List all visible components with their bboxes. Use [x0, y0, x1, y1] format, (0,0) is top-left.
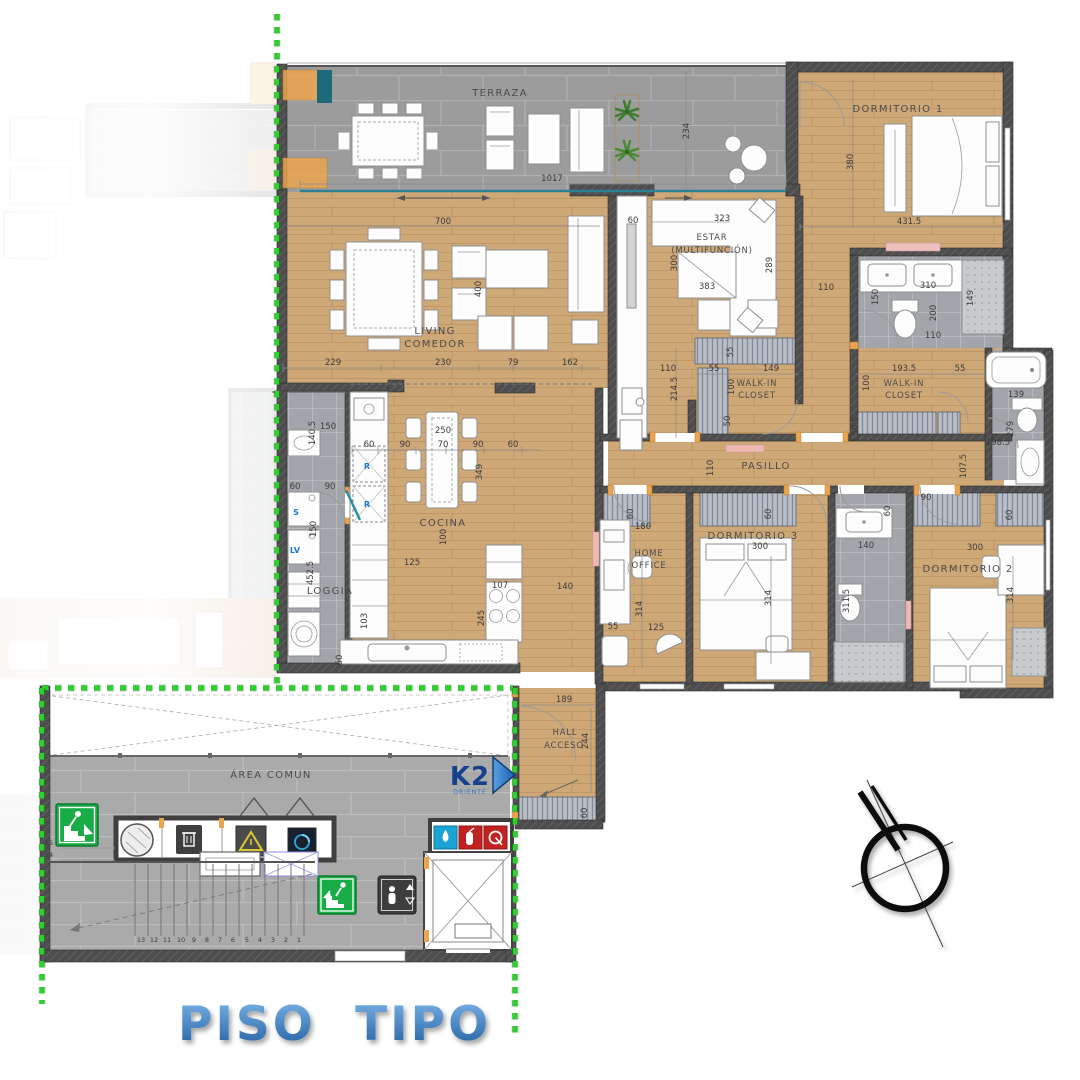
- water-tank-icon: [121, 824, 153, 856]
- exit-stairs-icon: [56, 804, 98, 846]
- stair-number: 6: [231, 936, 235, 944]
- trash-icon: [176, 825, 202, 854]
- dim-label: 100: [727, 379, 737, 395]
- dim-label: 60: [335, 655, 345, 666]
- page-title: PISO TIPO: [178, 997, 491, 1052]
- room-label-cocina: COCINA: [420, 518, 467, 529]
- dim-label: 60: [364, 440, 375, 450]
- dim-label: 314: [1006, 587, 1016, 603]
- dim-label: 103: [360, 613, 370, 629]
- dim-label: 180: [635, 522, 651, 532]
- dim-label: 60: [764, 509, 774, 520]
- dim-label: 150: [320, 422, 336, 432]
- floor-plan-canvas: TERRAZA DORMITORIO 1 LIVING COMEDOR ESTA…: [0, 0, 1080, 1080]
- dim-label: 100: [439, 529, 449, 545]
- dim-label: 50.5: [851, 417, 861, 436]
- room-label-estar: ESTAR: [696, 233, 727, 243]
- dim-label: 349: [475, 464, 485, 480]
- room-label-walkin2b: CLOSET: [885, 391, 923, 401]
- dryer-label: S: [293, 508, 299, 517]
- room-label-living2: COMEDOR: [404, 339, 465, 350]
- room-label-living: LIVING: [414, 326, 455, 337]
- dim-label: 110: [818, 283, 834, 293]
- stair-number: 5: [245, 936, 249, 944]
- dim-label: 150: [309, 521, 319, 537]
- dim-label: 110: [706, 460, 716, 476]
- room-label-dormitorio3: DORMITORIO 3: [708, 531, 799, 542]
- dim-label: 79: [508, 358, 519, 368]
- stair-number: 10: [177, 936, 185, 944]
- dim-label: 149: [966, 290, 976, 306]
- dim-label: 60: [290, 482, 301, 492]
- room-label-walkin1b: CLOSET: [738, 391, 776, 401]
- dim-label: 323: [714, 214, 730, 224]
- stair-number: 15: [45, 839, 53, 847]
- fridge-label: R: [364, 462, 370, 471]
- dim-label: 55: [726, 347, 736, 358]
- dim-label: 300: [967, 543, 983, 553]
- stair-number: 12: [150, 936, 158, 944]
- dim-label: 431.5: [897, 217, 921, 227]
- stair-number: 7: [218, 936, 222, 944]
- dim-label: 140.5: [308, 421, 318, 445]
- room-label-loggia: LOGGIA: [307, 586, 353, 597]
- dim-label: 90: [325, 482, 336, 492]
- dim-label: 100: [862, 375, 872, 391]
- dim-label: 245: [477, 610, 487, 626]
- dim-label: 452.5: [306, 561, 316, 585]
- dim-label: 90: [473, 440, 484, 450]
- dim-label: 60: [628, 216, 639, 226]
- dim-label: 140: [557, 582, 573, 592]
- dim-label: 50: [723, 416, 733, 427]
- fire-extinguisher-icon: [459, 826, 482, 849]
- dim-label: 162: [562, 358, 578, 368]
- north-compass-icon: [852, 780, 953, 947]
- hose-reel-icon: [484, 826, 507, 849]
- stair-number: 3: [271, 936, 275, 944]
- fridge-label2: R: [364, 500, 370, 509]
- dim-label: 193.5: [892, 364, 916, 374]
- dim-label: 60: [883, 506, 893, 517]
- dim-label: 244: [581, 733, 591, 749]
- dim-label: 110: [660, 364, 676, 374]
- elevator-icon: [378, 876, 416, 914]
- dim-label: 125: [648, 623, 664, 633]
- dim-label: 383: [699, 282, 715, 292]
- room-label-dormitorio2: DORMITORIO 2: [923, 564, 1014, 575]
- dim-label: 149: [763, 364, 779, 374]
- washer-label: LV: [290, 546, 301, 555]
- dim-label: 300: [670, 255, 680, 271]
- dim-label: 139: [1008, 390, 1024, 400]
- dim-label: 289: [765, 257, 775, 273]
- exit-stairs-icon-2: [318, 876, 356, 914]
- stair-number: 4: [258, 936, 262, 944]
- dim-label: 229: [325, 358, 341, 368]
- dim-label: 70: [438, 440, 449, 450]
- water-valve-icon: [434, 826, 457, 849]
- dim-label: 60: [626, 509, 636, 520]
- dim-label: 314: [635, 601, 645, 617]
- k2-logo-text: K2: [450, 762, 490, 792]
- dim-label: 1017: [541, 174, 563, 184]
- stair-number: 8: [205, 936, 209, 944]
- dim-label: 55: [608, 622, 619, 632]
- stair-number: 13: [137, 936, 145, 944]
- elevator-shaft: [424, 852, 512, 950]
- dim-label: 310: [920, 281, 936, 291]
- dim-label: 90: [921, 493, 932, 503]
- room-label-pasillo: PASILLO: [741, 461, 790, 472]
- room-label-terraza: TERRAZA: [471, 88, 528, 99]
- dim-label: 90: [400, 440, 411, 450]
- dim-label: 110: [925, 331, 941, 341]
- dim-label: 140: [858, 541, 874, 551]
- dim-label: 125: [404, 558, 420, 568]
- room-label-estar2: (MULTIFUNCIÓN): [671, 244, 753, 256]
- room-label-hall: HALL: [553, 728, 578, 738]
- room-label-home: HOME: [635, 549, 664, 559]
- dim-label: 150: [871, 289, 881, 305]
- dim-label: 400: [474, 281, 484, 297]
- stair-number: 2: [284, 936, 288, 944]
- dim-label: 230: [435, 358, 451, 368]
- stair-number: 14: [45, 851, 53, 859]
- dim-label: 314: [764, 590, 774, 606]
- dim-label: 300: [752, 542, 768, 552]
- dim-label: 198.5: [986, 438, 1010, 448]
- dim-label: 60: [508, 440, 519, 450]
- dim-label: 380: [846, 154, 856, 170]
- dim-label: 60: [580, 808, 590, 819]
- dim-label: 55: [709, 364, 720, 374]
- dim-label: 214.5: [670, 377, 680, 401]
- stair-number: 11: [163, 936, 171, 944]
- dim-label: 200: [929, 305, 939, 321]
- room-label-dormitorio1: DORMITORIO 1: [853, 104, 944, 115]
- room-label-area-comun: ÁREA COMUN: [230, 768, 311, 781]
- dim-label: 107.5: [959, 454, 969, 478]
- dim-label: 189: [556, 695, 572, 705]
- room-label-walkin2: WALK-IN: [884, 379, 925, 389]
- dim-label: 279: [1006, 421, 1016, 437]
- dim-label: 700: [435, 217, 451, 227]
- dim-label: 250: [435, 426, 451, 436]
- stair-number: 9: [192, 936, 196, 944]
- room-label-home2: OFFICE: [631, 561, 666, 571]
- dim-label: 107: [492, 581, 508, 591]
- stair-number: 1: [297, 936, 301, 944]
- room-label-hall2: ACCESO: [544, 741, 584, 751]
- dim-label: 55: [955, 364, 966, 374]
- dim-label: 234: [682, 123, 692, 139]
- dim-label: 60: [1005, 510, 1015, 521]
- room-label-walkin1: WALK-IN: [737, 379, 778, 389]
- k2-logo-subtitle: ORIENTE: [453, 789, 486, 796]
- dim-label: 311.5: [842, 589, 852, 613]
